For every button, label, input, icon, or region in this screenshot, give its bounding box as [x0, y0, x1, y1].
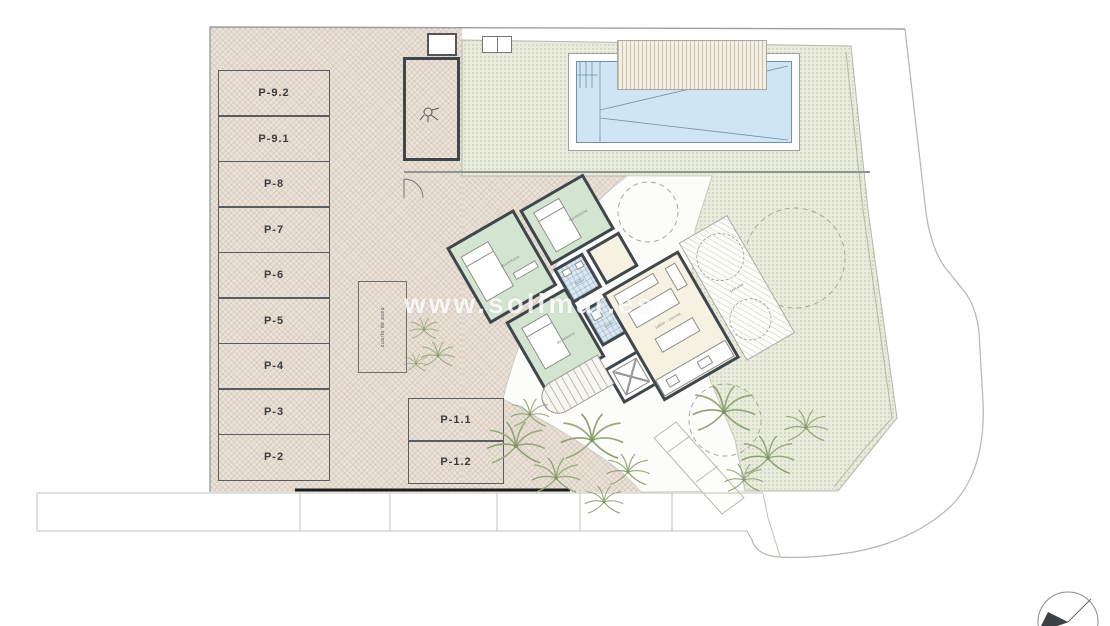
palm-tree-icon — [606, 454, 649, 485]
palm-tree-icon — [511, 399, 549, 426]
site-plan: P-9.2 P-9.1 P-8 P-7 P-6 P-5 P-4 P-3 P-2 … — [0, 0, 1110, 626]
palm-tree-icon — [784, 410, 827, 441]
palm-tree-icon — [585, 486, 623, 513]
watermark: www.solimar.es — [404, 288, 724, 320]
shrub-icon — [404, 354, 428, 371]
shrub-icon — [421, 342, 455, 366]
palm-tree-icon — [561, 414, 623, 458]
palm-tree-icon — [487, 422, 545, 463]
palm-tree-icon — [742, 436, 795, 473]
outdoor-shower-icon — [420, 108, 439, 122]
palm-tree-icon — [693, 386, 755, 430]
north-arrow-icon — [1038, 592, 1098, 626]
shrub-icon — [410, 318, 439, 338]
